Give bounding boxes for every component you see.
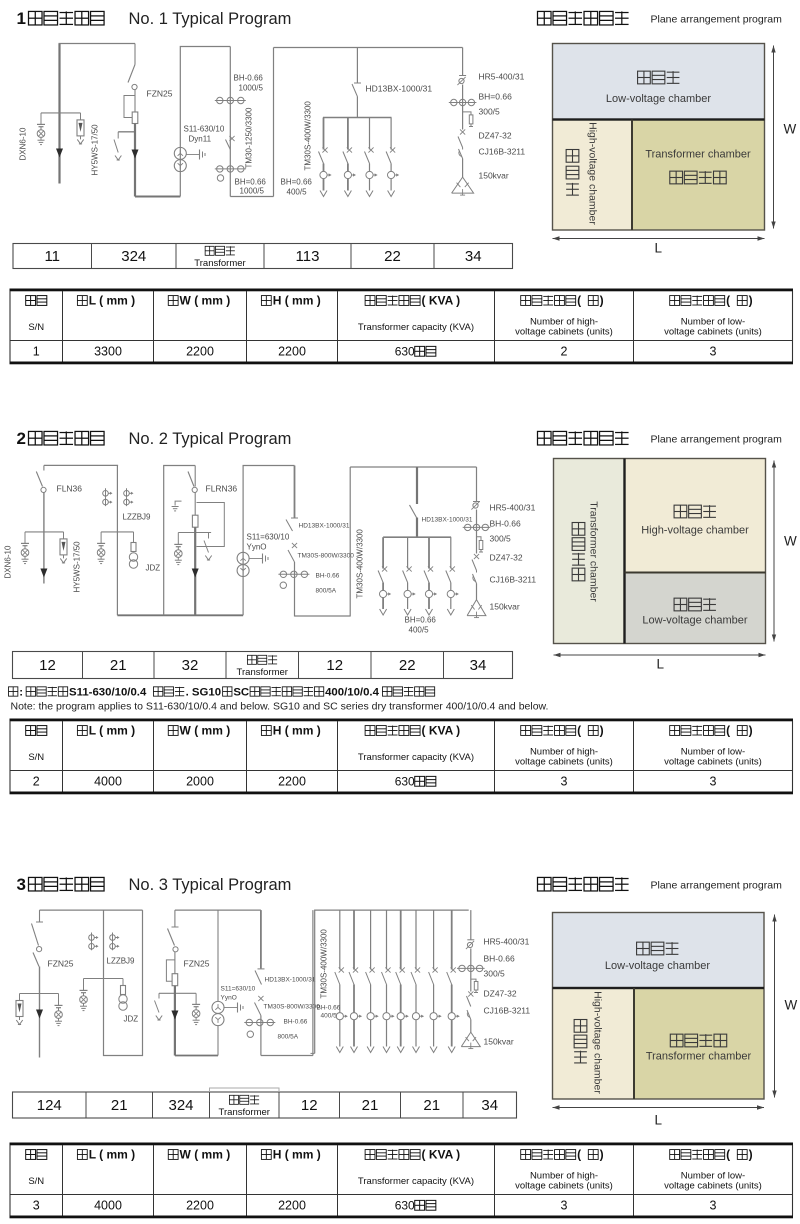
svg-text:BH=0.66: BH=0.66 — [405, 616, 437, 625]
svg-text:HD13BX-1000/31: HD13BX-1000/31 — [265, 977, 316, 984]
svg-text:( KVA ): ( KVA ) — [422, 724, 461, 738]
svg-text:(: ( — [726, 1148, 730, 1162]
svg-text:12: 12 — [39, 657, 56, 674]
svg-text:Dyn11: Dyn11 — [189, 135, 212, 144]
svg-text:HD13BX-1000/31: HD13BX-1000/31 — [366, 84, 433, 94]
svg-text:JDZ: JDZ — [124, 1015, 139, 1024]
svg-text:22: 22 — [399, 657, 416, 674]
svg-text:HY5WS-17/50: HY5WS-17/50 — [91, 124, 100, 176]
svg-text:( KVA ): ( KVA ) — [422, 1148, 461, 1162]
svg-text:300/5: 300/5 — [484, 969, 506, 979]
svg-text:voltage cabinets (units): voltage cabinets (units) — [515, 757, 613, 768]
svg-text:FLRN36: FLRN36 — [206, 484, 238, 494]
svg-text:LZZBJ9: LZZBJ9 — [107, 957, 136, 966]
svg-text:Note: the program applies to S: Note: the program applies to S11-630/10/… — [11, 701, 549, 713]
svg-text:voltage cabinets (units): voltage cabinets (units) — [664, 327, 762, 338]
svg-text:3300: 3300 — [94, 345, 122, 359]
svg-text:3: 3 — [710, 345, 717, 359]
svg-text:DZ47-32: DZ47-32 — [479, 131, 512, 141]
svg-text:34: 34 — [465, 248, 482, 265]
svg-text:): ) — [749, 1148, 753, 1162]
svg-text:1: 1 — [33, 345, 40, 359]
svg-text:SC: SC — [233, 686, 249, 698]
svg-text:( KVA ): ( KVA ) — [422, 294, 461, 308]
svg-text:400/5: 400/5 — [321, 1013, 338, 1020]
svg-text:YynO: YynO — [247, 543, 267, 552]
svg-text:12: 12 — [301, 1097, 318, 1114]
svg-text:11: 11 — [44, 248, 60, 265]
svg-text:TM30S-400W/3300: TM30S-400W/3300 — [304, 101, 313, 171]
svg-text:BH-0.66: BH-0.66 — [234, 74, 264, 83]
svg-text:S11=630/10: S11=630/10 — [221, 986, 256, 993]
svg-text:DXN6-10: DXN6-10 — [19, 127, 28, 160]
svg-text:Plane arrangement program: Plane arrangement program — [651, 434, 783, 446]
svg-text:HR5-400/31: HR5-400/31 — [479, 72, 525, 82]
svg-text:Transformer chamber: Transformer chamber — [588, 501, 600, 602]
svg-text:voltage cabinets (units): voltage cabinets (units) — [664, 1181, 762, 1192]
svg-text:Transformer capacity (KVA): Transformer capacity (KVA) — [358, 1176, 474, 1187]
svg-text:BH-0.66: BH-0.66 — [490, 519, 521, 529]
svg-text:4000: 4000 — [94, 1199, 122, 1213]
svg-text:): ) — [600, 724, 604, 738]
svg-text:324: 324 — [168, 1097, 193, 1114]
svg-text:L: L — [655, 241, 663, 256]
svg-text:2: 2 — [561, 345, 568, 359]
svg-text::: : — [19, 686, 23, 698]
svg-text:HR5-400/31: HR5-400/31 — [490, 503, 536, 513]
svg-text:TM30S-400W/3300: TM30S-400W/3300 — [356, 529, 365, 599]
svg-text:HY5WS-17/50: HY5WS-17/50 — [73, 541, 82, 593]
svg-text:W: W — [784, 122, 797, 137]
svg-text:BH=0.66: BH=0.66 — [281, 178, 313, 187]
svg-text:BH-0.66: BH-0.66 — [317, 1005, 341, 1012]
svg-text:400/5: 400/5 — [409, 626, 430, 635]
svg-text:Plane arrangement program: Plane arrangement program — [651, 880, 783, 892]
svg-text:12: 12 — [326, 657, 343, 674]
svg-text:CJ16B-3211: CJ16B-3211 — [490, 575, 537, 585]
svg-text:FLN36: FLN36 — [57, 484, 83, 494]
svg-text:CJ16B-3211: CJ16B-3211 — [484, 1006, 531, 1016]
svg-text:1000/5: 1000/5 — [240, 187, 265, 196]
svg-text:TM30S-800W/3300: TM30S-800W/3300 — [298, 553, 355, 560]
svg-text:L ( mm ): L ( mm ) — [89, 294, 135, 308]
svg-text:): ) — [600, 294, 604, 308]
svg-text:630: 630 — [395, 345, 415, 359]
svg-text:(: ( — [577, 724, 581, 738]
svg-text:BH-0.66: BH-0.66 — [484, 954, 515, 964]
svg-text:300/5: 300/5 — [490, 534, 512, 544]
svg-text:S/N: S/N — [28, 752, 44, 763]
svg-text:JDZ: JDZ — [146, 564, 161, 573]
svg-text:FZN25: FZN25 — [147, 89, 173, 99]
svg-text:High-voltage chamber: High-voltage chamber — [592, 991, 604, 1094]
svg-text:S11-630/10: S11-630/10 — [184, 125, 225, 134]
svg-text:Low-voltage chamber: Low-voltage chamber — [605, 960, 711, 972]
svg-text:22: 22 — [384, 248, 401, 265]
svg-text:FZN25: FZN25 — [184, 959, 210, 969]
svg-text:3: 3 — [33, 1199, 40, 1213]
svg-text:Transformer chamber: Transformer chamber — [646, 1051, 752, 1063]
svg-text:): ) — [749, 294, 753, 308]
svg-text:W ( mm ): W ( mm ) — [180, 724, 231, 738]
svg-text:800/5A: 800/5A — [278, 1034, 299, 1041]
svg-text:2200: 2200 — [186, 1199, 214, 1213]
svg-text:(: ( — [726, 724, 730, 738]
svg-text:L: L — [657, 657, 665, 672]
svg-text:3: 3 — [710, 775, 717, 789]
svg-text:124: 124 — [37, 1097, 62, 1114]
svg-text:S/N: S/N — [28, 322, 44, 333]
svg-text:2: 2 — [17, 429, 26, 448]
svg-text:2: 2 — [33, 775, 40, 789]
svg-text:3: 3 — [710, 1199, 717, 1213]
svg-text:BH=0.66: BH=0.66 — [235, 178, 267, 187]
svg-text:High-voltage chamber: High-voltage chamber — [587, 122, 599, 225]
svg-text:3: 3 — [561, 1199, 568, 1213]
svg-text:No. 2 Typical Program: No. 2 Typical Program — [129, 430, 292, 448]
svg-text:1: 1 — [17, 9, 26, 28]
svg-text:W: W — [785, 998, 798, 1013]
svg-text:L: L — [655, 1113, 663, 1128]
svg-text:300/5: 300/5 — [479, 107, 501, 117]
svg-text:DZ47-32: DZ47-32 — [490, 553, 523, 563]
svg-text:W ( mm ): W ( mm ) — [180, 294, 231, 308]
svg-text:S11=630/10: S11=630/10 — [247, 533, 290, 542]
svg-text:21: 21 — [423, 1097, 440, 1114]
svg-text:No. 1 Typical Program: No. 1 Typical Program — [129, 10, 292, 28]
svg-text:HD13BX-1000/31: HD13BX-1000/31 — [422, 517, 473, 524]
svg-text:FZN25: FZN25 — [48, 959, 74, 969]
svg-text:2200: 2200 — [278, 1199, 306, 1213]
svg-text:W ( mm ): W ( mm ) — [180, 1148, 231, 1162]
svg-text:150kvar: 150kvar — [490, 602, 520, 612]
svg-text:voltage cabinets (units): voltage cabinets (units) — [515, 1181, 613, 1192]
svg-text:LZZBJ9: LZZBJ9 — [123, 513, 152, 522]
svg-text:BH-0.66: BH-0.66 — [316, 573, 340, 580]
svg-text:Transformer: Transformer — [194, 258, 245, 269]
svg-text:150kvar: 150kvar — [479, 171, 509, 181]
svg-text:34: 34 — [470, 657, 487, 674]
svg-text:Low-voltage chamber: Low-voltage chamber — [606, 93, 712, 105]
svg-text:(: ( — [577, 294, 581, 308]
svg-text:TM30-1250/3300: TM30-1250/3300 — [245, 107, 254, 168]
svg-text:): ) — [749, 724, 753, 738]
svg-text:H ( mm ): H ( mm ) — [273, 724, 321, 738]
svg-text:. SG10: . SG10 — [186, 686, 221, 698]
svg-text:Plane arrangement program: Plane arrangement program — [651, 14, 783, 26]
svg-text:34: 34 — [481, 1097, 498, 1114]
svg-text:(: ( — [577, 1148, 581, 1162]
svg-text:W: W — [784, 534, 797, 549]
svg-text:21: 21 — [110, 657, 127, 674]
svg-text:Low-voltage chamber: Low-voltage chamber — [642, 615, 748, 627]
svg-text:4000: 4000 — [94, 775, 122, 789]
svg-text:Transformer chamber: Transformer chamber — [645, 149, 751, 161]
svg-text:DXN6-10: DXN6-10 — [4, 545, 13, 578]
svg-text:CJ16B-3211: CJ16B-3211 — [479, 147, 526, 157]
svg-text:150kvar: 150kvar — [484, 1037, 514, 1047]
svg-text:HD13BX-1000/31: HD13BX-1000/31 — [299, 523, 350, 530]
svg-text:630: 630 — [395, 775, 415, 789]
svg-text:H ( mm ): H ( mm ) — [273, 1148, 321, 1162]
svg-text:21: 21 — [111, 1097, 128, 1114]
svg-text:BH=0.66: BH=0.66 — [479, 92, 513, 102]
svg-text:S11-630/10/0.4: S11-630/10/0.4 — [69, 686, 147, 698]
svg-text:(: ( — [726, 294, 730, 308]
svg-text:630: 630 — [395, 1199, 415, 1213]
svg-text:800/5A: 800/5A — [316, 588, 337, 595]
svg-text:voltage cabinets (units): voltage cabinets (units) — [664, 757, 762, 768]
svg-text:L ( mm ): L ( mm ) — [89, 724, 135, 738]
svg-text:21: 21 — [362, 1097, 379, 1114]
svg-text:2000: 2000 — [186, 775, 214, 789]
svg-text:32: 32 — [182, 657, 199, 674]
svg-text:TM30S-800W/3300: TM30S-800W/3300 — [264, 1004, 321, 1011]
svg-text:Transformer: Transformer — [237, 667, 288, 678]
svg-text:HR5-400/31: HR5-400/31 — [484, 937, 530, 947]
svg-text:voltage cabinets (units): voltage cabinets (units) — [515, 327, 613, 338]
svg-text:2200: 2200 — [186, 345, 214, 359]
svg-text:H ( mm ): H ( mm ) — [273, 294, 321, 308]
svg-text:No. 3 Typical Program: No. 3 Typical Program — [129, 876, 292, 894]
svg-text:TM30S-400W/3300: TM30S-400W/3300 — [320, 929, 329, 999]
svg-text:Transformer capacity (KVA): Transformer capacity (KVA) — [358, 322, 474, 333]
svg-text:113: 113 — [296, 248, 320, 265]
svg-text:S/N: S/N — [28, 1176, 44, 1187]
svg-text:): ) — [600, 1148, 604, 1162]
svg-text:High-voltage chamber: High-voltage chamber — [641, 525, 749, 537]
svg-text:1000/5: 1000/5 — [239, 84, 264, 93]
svg-text:Transformer capacity (KVA): Transformer capacity (KVA) — [358, 752, 474, 763]
svg-text:Transformer: Transformer — [219, 1107, 270, 1118]
svg-text:BH-0.66: BH-0.66 — [284, 1019, 308, 1026]
svg-text:324: 324 — [121, 248, 146, 265]
svg-text:L ( mm ): L ( mm ) — [89, 1148, 135, 1162]
svg-text:3: 3 — [17, 875, 26, 894]
svg-text:3: 3 — [561, 775, 568, 789]
svg-text:YynO: YynO — [221, 995, 237, 1002]
svg-text:2200: 2200 — [278, 345, 306, 359]
svg-text:400/5: 400/5 — [287, 188, 308, 197]
svg-text:2200: 2200 — [278, 775, 306, 789]
svg-text:400/10/0.4: 400/10/0.4 — [325, 686, 380, 698]
svg-text:DZ47-32: DZ47-32 — [484, 989, 517, 999]
